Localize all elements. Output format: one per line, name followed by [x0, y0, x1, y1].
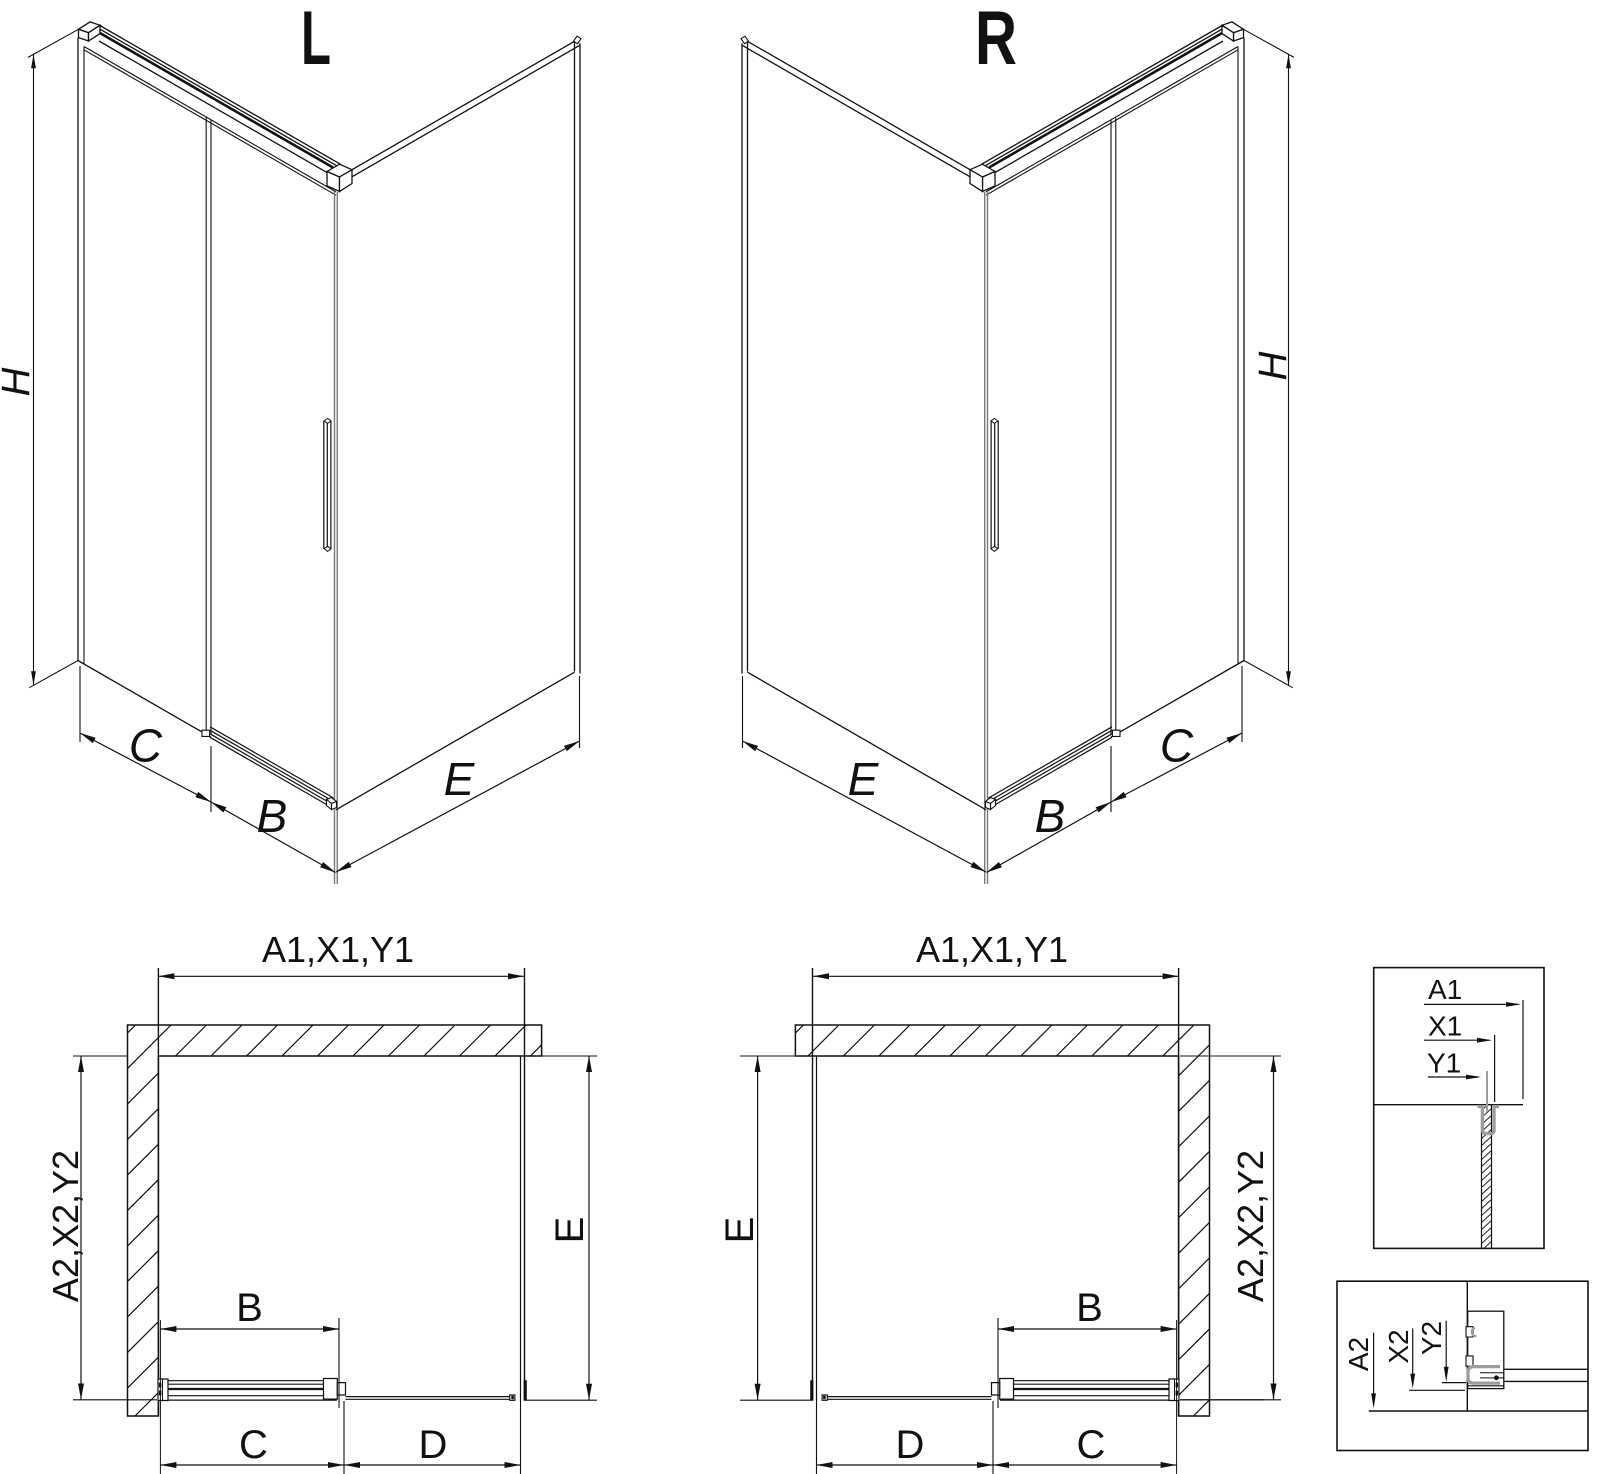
svg-text:H: H	[1251, 351, 1295, 380]
svg-text:B: B	[236, 1286, 263, 1330]
svg-text:X1: X1	[1428, 1011, 1462, 1042]
svg-text:C: C	[1077, 1423, 1106, 1467]
svg-text:C: C	[129, 720, 163, 772]
svg-text:E: E	[718, 1217, 762, 1244]
svg-text:E: E	[548, 1217, 592, 1244]
svg-text:B: B	[1076, 1286, 1103, 1330]
svg-text:D: D	[896, 1423, 925, 1467]
svg-text:C: C	[239, 1423, 268, 1467]
svg-text:D: D	[419, 1423, 448, 1467]
svg-text:A1,X1,Y1: A1,X1,Y1	[916, 929, 1068, 970]
svg-text:L: L	[301, 0, 331, 81]
svg-text:A1,X1,Y1: A1,X1,Y1	[262, 929, 414, 970]
svg-text:R: R	[975, 0, 1017, 81]
svg-text:A1: A1	[1428, 974, 1462, 1005]
svg-text:Y1: Y1	[1427, 1047, 1461, 1078]
svg-text:E: E	[848, 753, 880, 805]
svg-text:H: H	[0, 367, 38, 396]
svg-text:A2,X2,Y2: A2,X2,Y2	[45, 1150, 86, 1302]
svg-text:B: B	[1035, 790, 1066, 842]
svg-text:Y2: Y2	[1416, 1321, 1447, 1355]
svg-text:B: B	[257, 790, 288, 842]
svg-text:E: E	[444, 753, 476, 805]
svg-text:A2,X2,Y2: A2,X2,Y2	[1230, 1150, 1271, 1302]
svg-text:C: C	[1160, 720, 1194, 772]
svg-text:A2: A2	[1343, 1337, 1374, 1371]
svg-text:X2: X2	[1383, 1329, 1414, 1363]
